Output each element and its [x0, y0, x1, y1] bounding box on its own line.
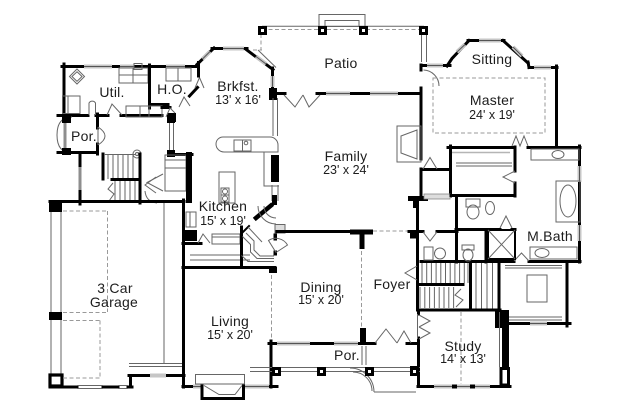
svg-text:Living: Living: [211, 313, 249, 329]
svg-text:13' x 16': 13' x 16': [215, 93, 261, 107]
svg-text:M.Bath: M.Bath: [527, 228, 573, 244]
svg-text:14' x 13': 14' x 13': [440, 352, 486, 366]
svg-text:Master: Master: [470, 92, 514, 108]
svg-text:Family: Family: [325, 148, 368, 164]
svg-text:Garage: Garage: [90, 294, 138, 310]
svg-text:Kitchen: Kitchen: [199, 198, 247, 214]
svg-text:15' x 19': 15' x 19': [200, 214, 246, 228]
svg-text:Util.: Util.: [99, 84, 124, 100]
svg-text:Por.: Por.: [71, 128, 97, 144]
svg-text:23' x 24': 23' x 24': [323, 163, 369, 177]
svg-text:24' x 19': 24' x 19': [469, 108, 515, 122]
svg-text:Foyer: Foyer: [373, 276, 410, 292]
svg-text:15' x 20': 15' x 20': [207, 328, 253, 342]
svg-text:Patio: Patio: [324, 55, 357, 71]
svg-text:Sitting: Sitting: [472, 51, 513, 67]
svg-text:15' x 20': 15' x 20': [298, 293, 344, 307]
svg-text:Por.: Por.: [334, 347, 360, 363]
svg-text:H.O.: H.O.: [157, 81, 187, 97]
svg-text:Brkfst.: Brkfst.: [217, 78, 258, 94]
